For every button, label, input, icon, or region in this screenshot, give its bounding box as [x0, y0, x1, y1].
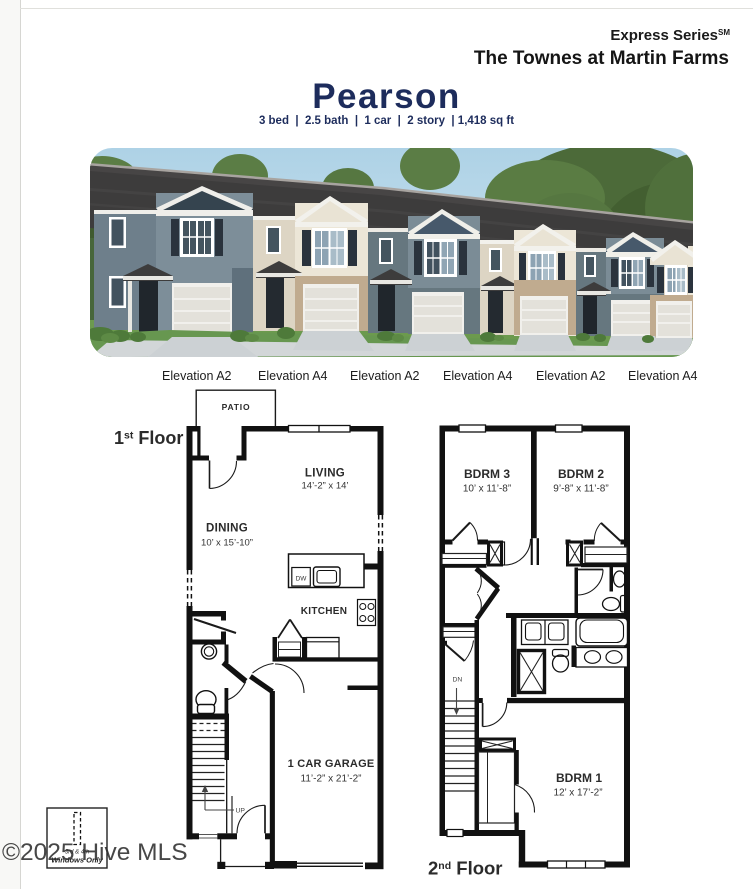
svg-text:11’-2” x 21’-2”: 11’-2” x 21’-2”	[301, 774, 362, 785]
svg-text:DINING: DINING	[206, 523, 248, 535]
svg-text:DW: DW	[296, 576, 308, 583]
svg-text:10’ x 11’-8”: 10’ x 11’-8”	[463, 484, 511, 495]
svg-text:2nd Floor: 2nd Floor	[428, 858, 503, 879]
svg-text:LIVING: LIVING	[305, 468, 345, 480]
svg-text:BDRM 2: BDRM 2	[558, 467, 604, 481]
svg-text:BDRM 3: BDRM 3	[464, 467, 510, 481]
svg-text:9’-8” x 11’-8”: 9’-8” x 11’-8”	[553, 484, 608, 495]
svg-text:1st Floor: 1st Floor	[114, 428, 183, 448]
svg-text:1 CAR GARAGE: 1 CAR GARAGE	[288, 758, 375, 770]
svg-text:UP: UP	[236, 808, 246, 815]
svg-text:12’ x 17’-2”: 12’ x 17’-2”	[553, 788, 602, 799]
svg-text:14’-2” x 14’: 14’-2” x 14’	[302, 481, 349, 492]
svg-text:10’ x 15’-10”: 10’ x 15’-10”	[201, 538, 253, 549]
svg-text:PATIO: PATIO	[222, 402, 251, 412]
svg-text:KITCHEN: KITCHEN	[301, 606, 348, 617]
svg-text:BDRM 1: BDRM 1	[556, 771, 602, 785]
svg-text:DN: DN	[453, 677, 463, 684]
